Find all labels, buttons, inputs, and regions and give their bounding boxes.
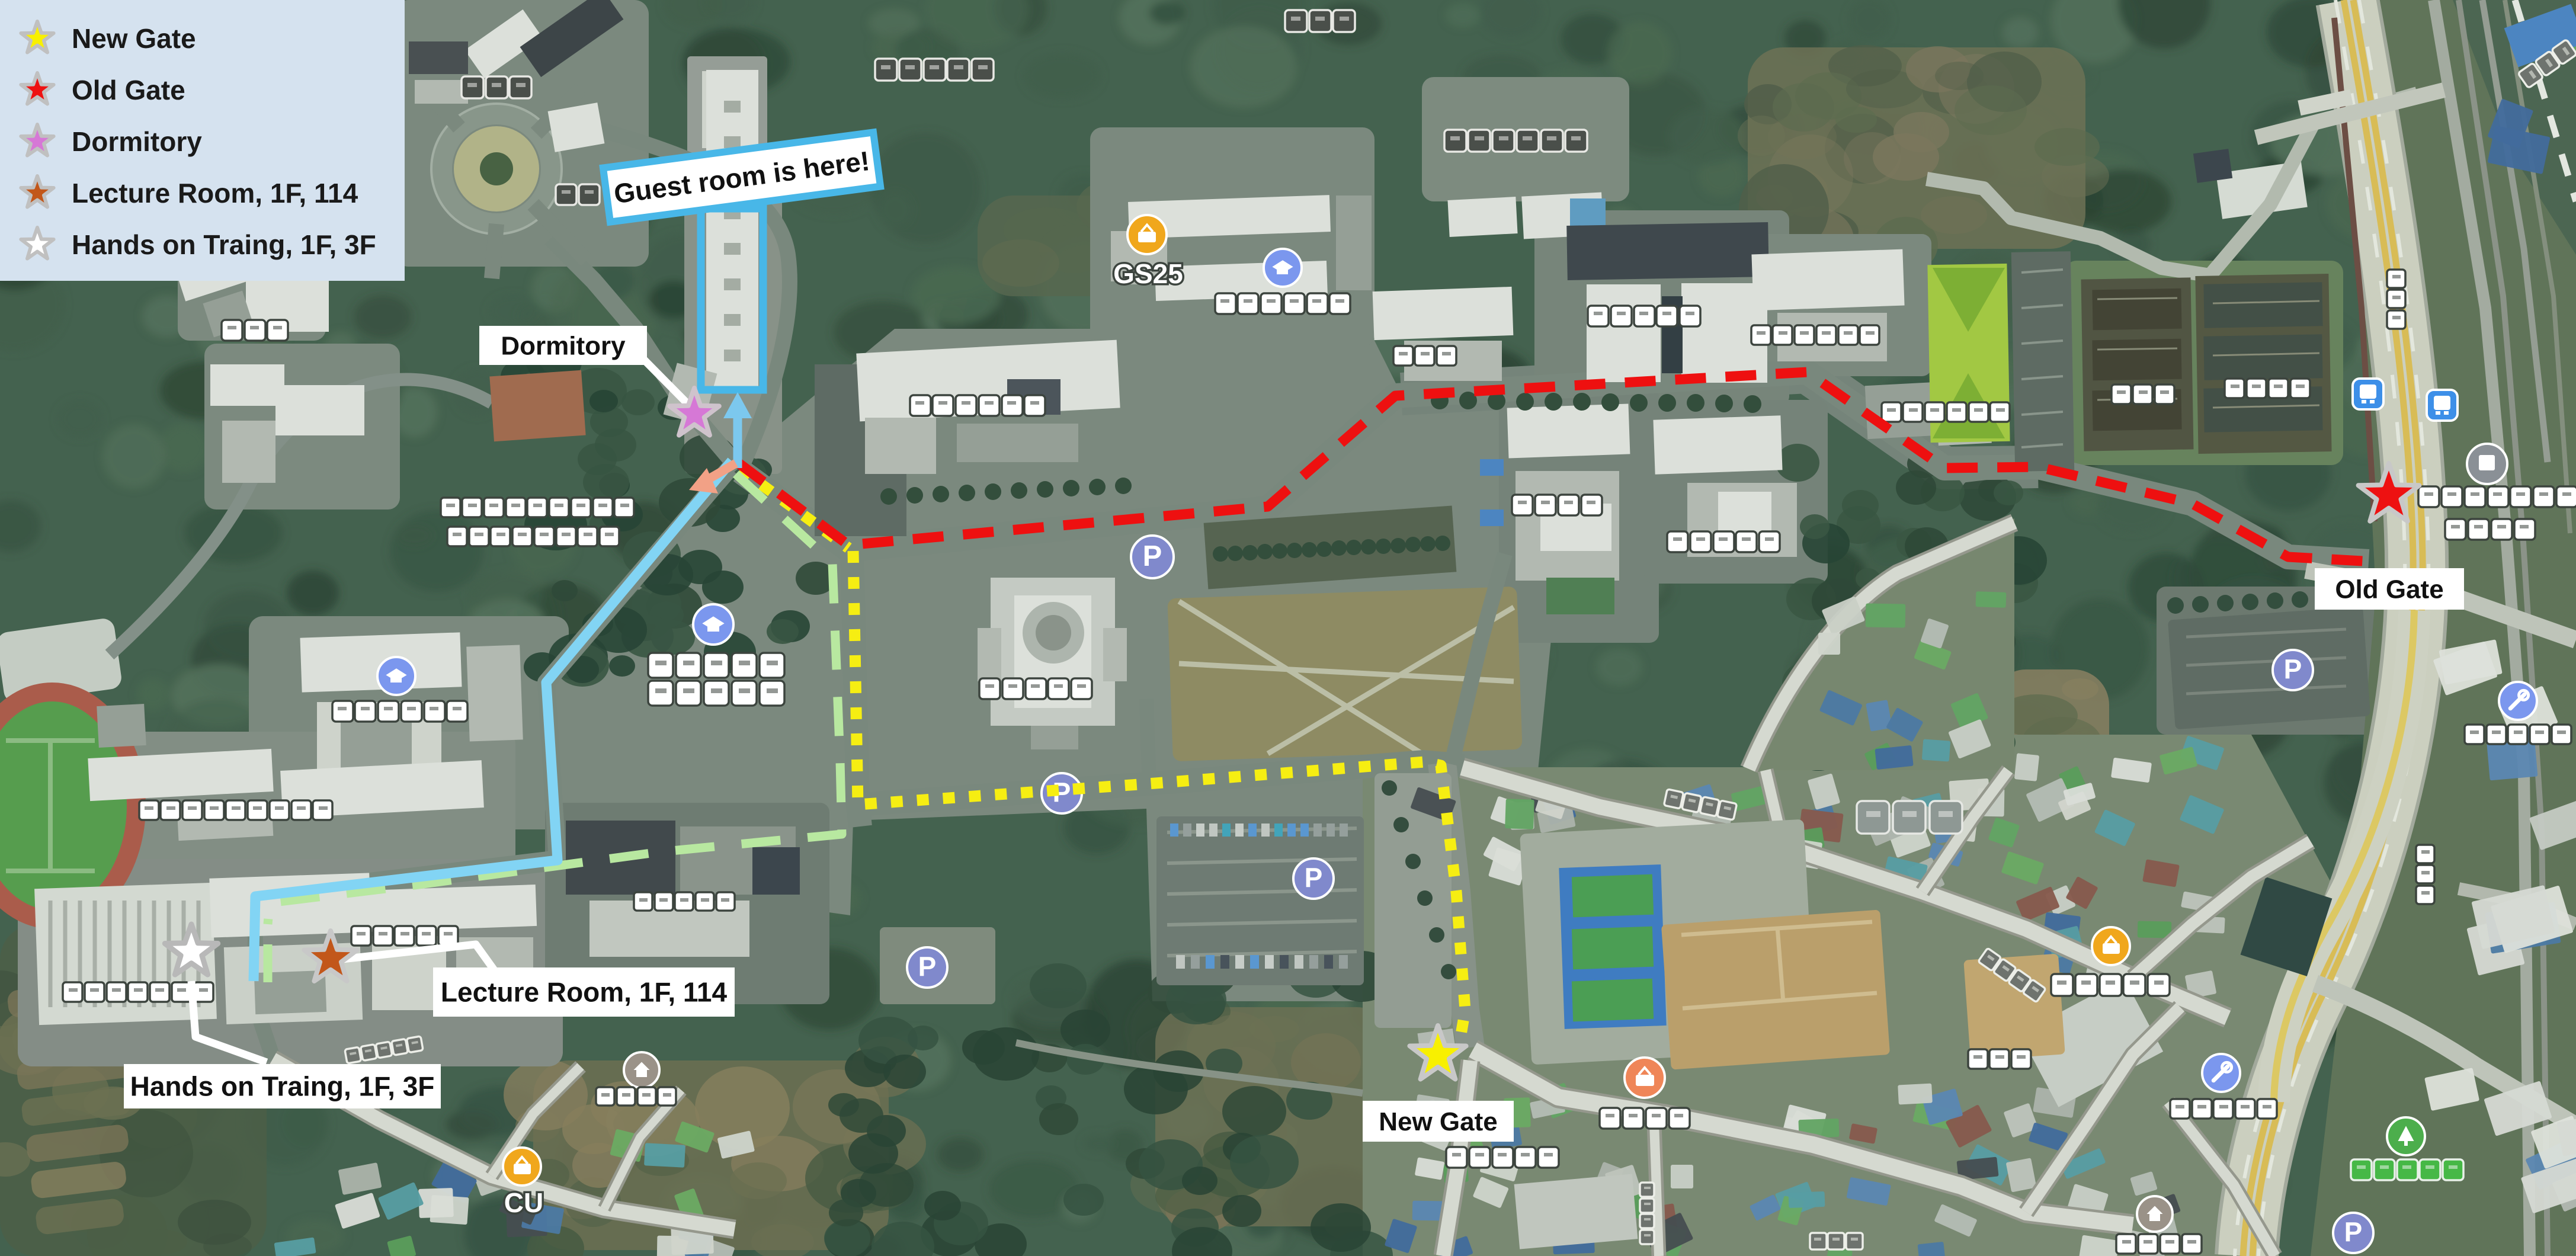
svg-text:New Gate: New Gate: [72, 23, 196, 54]
svg-text:P: P: [2284, 653, 2302, 684]
svg-text:P: P: [918, 951, 937, 982]
svg-text:Old Gate: Old Gate: [72, 75, 185, 105]
svg-text:Old Gate: Old Gate: [2335, 575, 2443, 604]
svg-text:Lecture Room, 1F, 114: Lecture Room, 1F, 114: [441, 977, 728, 1008]
svg-text:Hands on Traing, 1F, 3F: Hands on Traing, 1F, 3F: [130, 1071, 435, 1102]
svg-text:Dormitory: Dormitory: [72, 126, 202, 157]
svg-text:New Gate: New Gate: [1379, 1107, 1498, 1136]
svg-text:CU: CU: [504, 1187, 543, 1218]
svg-text:Lecture Room, 1F, 114: Lecture Room, 1F, 114: [72, 178, 358, 209]
svg-text:GS25: GS25: [1113, 258, 1183, 289]
svg-text:Dormitory: Dormitory: [501, 331, 626, 360]
svg-text:Hands on Traing, 1F, 3F: Hands on Traing, 1F, 3F: [72, 229, 376, 260]
svg-text:P: P: [1143, 540, 1162, 572]
svg-text:P: P: [1305, 862, 1323, 893]
svg-text:P: P: [2344, 1216, 2363, 1247]
